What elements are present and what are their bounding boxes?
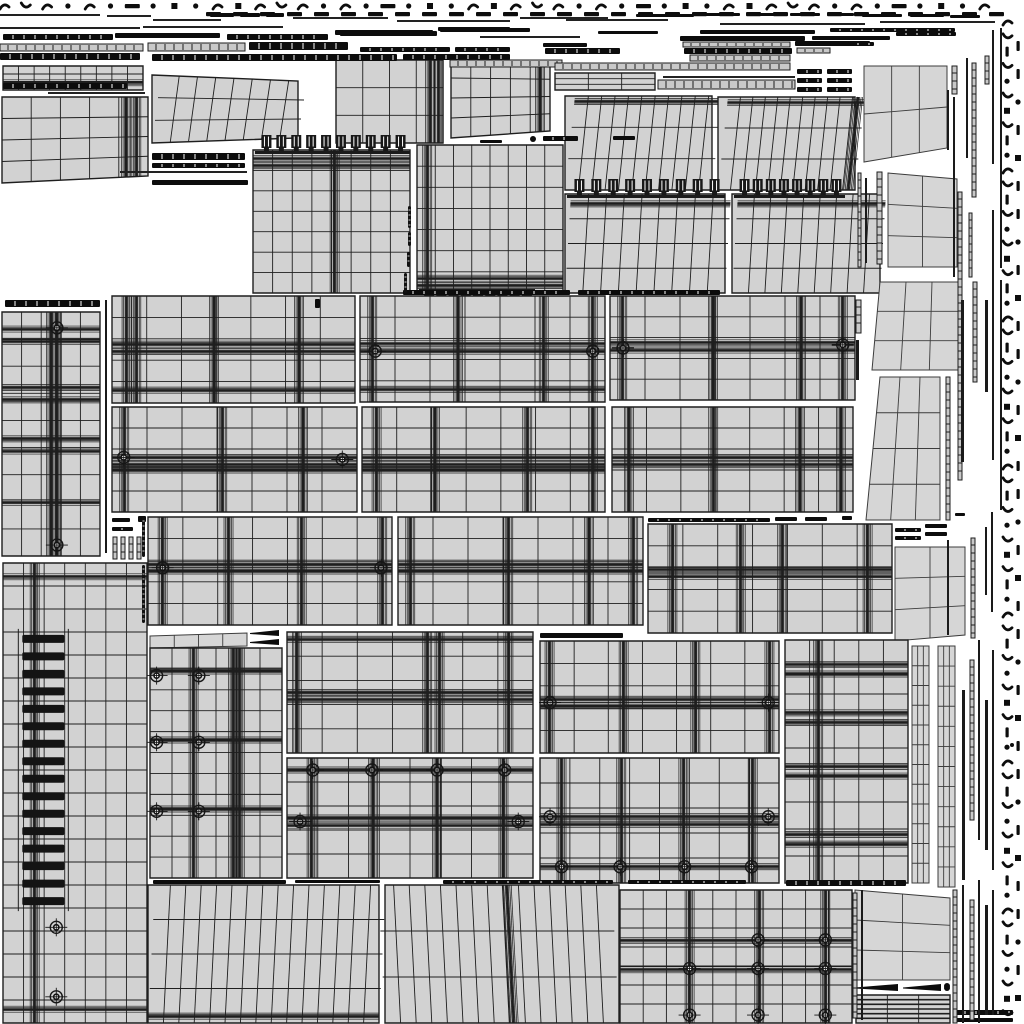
uv-strip-island bbox=[555, 63, 790, 70]
uv-strip-island bbox=[786, 880, 906, 886]
uv-island bbox=[895, 547, 965, 641]
uv-side-strip bbox=[129, 537, 133, 559]
uv-side-strip bbox=[992, 210, 994, 460]
uv-strip-island bbox=[628, 880, 746, 884]
uv-side-strip bbox=[113, 537, 117, 559]
uv-strip-island bbox=[827, 78, 852, 83]
uv-side-strip bbox=[973, 282, 977, 382]
uv-strip-island bbox=[700, 30, 815, 34]
uv-strip-island bbox=[895, 536, 921, 540]
uv-strip-island bbox=[543, 136, 578, 141]
uv-side-strip bbox=[408, 232, 411, 246]
uv-island bbox=[620, 890, 852, 1024]
uv-strip-island bbox=[775, 517, 797, 521]
uv-strip-island bbox=[543, 43, 587, 47]
uv-island bbox=[864, 66, 947, 162]
uv-strip-island bbox=[112, 518, 130, 522]
uv-strip-island bbox=[315, 299, 320, 308]
uv-island bbox=[612, 407, 853, 512]
uv-island bbox=[2, 312, 100, 556]
uv-strip-island bbox=[880, 21, 995, 23]
uv-side-strip bbox=[142, 565, 145, 623]
uv-strip-island bbox=[360, 47, 450, 52]
uv-island bbox=[336, 60, 443, 143]
uv-island bbox=[3, 563, 147, 1023]
uv-island bbox=[287, 632, 533, 753]
uv-island bbox=[610, 296, 855, 400]
uv-strip-island bbox=[720, 23, 865, 25]
uv-strip-island bbox=[896, 32, 956, 36]
uv-side-strip bbox=[961, 300, 964, 462]
uv-strip-island bbox=[658, 80, 795, 89]
uv-side-strip bbox=[992, 30, 994, 164]
uv-island bbox=[398, 517, 643, 625]
uv-island bbox=[938, 646, 955, 887]
uv-side-strip bbox=[966, 58, 968, 158]
uv-dot-island bbox=[944, 983, 950, 989]
uv-strip-island bbox=[3, 34, 113, 40]
uv-side-strip bbox=[858, 173, 861, 267]
uv-strip-island bbox=[0, 53, 140, 60]
uv-side-strip bbox=[947, 540, 949, 635]
uv-island bbox=[565, 96, 722, 190]
uv-side-strip bbox=[970, 900, 974, 1020]
uv-strip-island bbox=[480, 36, 580, 38]
uv-strip-island bbox=[895, 528, 921, 532]
uv-island bbox=[148, 517, 392, 625]
uv-strip-island bbox=[683, 42, 790, 47]
uv-side-strip bbox=[407, 252, 410, 267]
uv-strip-island bbox=[663, 76, 795, 78]
uv-strip-island bbox=[403, 290, 570, 295]
uv-atlas-frame bbox=[0, 0, 1024, 1024]
uv-side-strip bbox=[853, 893, 857, 1018]
uv-island bbox=[146, 648, 282, 878]
uv-strip-island bbox=[443, 880, 613, 884]
uv-side-strip bbox=[121, 537, 125, 559]
uv-strip-island bbox=[120, 171, 247, 173]
uv-island bbox=[648, 524, 892, 633]
uv-island bbox=[785, 640, 908, 883]
uv-island bbox=[539, 758, 779, 883]
uv-strip-island bbox=[152, 180, 248, 185]
uv-strip-island bbox=[3, 83, 127, 89]
uv-strip-island bbox=[805, 517, 827, 521]
uv-island bbox=[112, 296, 355, 403]
uv-island bbox=[152, 75, 304, 143]
uv-island bbox=[912, 646, 929, 883]
uv-side-strip bbox=[985, 527, 987, 595]
uv-strip-island bbox=[566, 19, 668, 21]
uv-island bbox=[856, 995, 950, 1023]
uv-strip-island bbox=[0, 44, 143, 51]
uv-strip-island bbox=[153, 19, 221, 21]
uv-island bbox=[417, 145, 563, 308]
uv-side-strip bbox=[970, 660, 974, 820]
uv-island bbox=[150, 633, 247, 648]
uv-side-strip bbox=[953, 890, 957, 1023]
uv-strip-island bbox=[112, 527, 133, 531]
uv-island bbox=[555, 73, 655, 90]
uv-strip-island bbox=[152, 163, 245, 168]
uv-island bbox=[253, 135, 410, 293]
uv-side-strip bbox=[137, 537, 141, 559]
uv-side-strip bbox=[978, 880, 980, 1023]
uv-strip-island bbox=[545, 48, 620, 54]
uv-side-strip bbox=[946, 377, 950, 520]
uv-strip-island bbox=[0, 27, 140, 29]
uv-side-strip bbox=[985, 700, 988, 850]
uv-strip-island bbox=[578, 290, 720, 295]
uv-strip-island bbox=[797, 69, 822, 74]
uv-strip-island bbox=[827, 69, 852, 74]
uv-strip-island bbox=[5, 300, 100, 307]
uv-strip-island bbox=[107, 15, 151, 17]
uv-strip-island bbox=[925, 524, 947, 528]
uv-strip-island bbox=[295, 880, 380, 883]
uv-island bbox=[112, 407, 357, 512]
uv-side-strip bbox=[856, 340, 859, 380]
uv-island bbox=[855, 890, 950, 980]
uv-strip-island bbox=[403, 54, 510, 60]
uv-side-strip bbox=[877, 172, 882, 264]
uv-side-strip bbox=[972, 63, 976, 197]
uv-island bbox=[380, 885, 619, 1023]
uv-strip-island bbox=[455, 47, 510, 52]
uv-side-strip bbox=[953, 97, 955, 277]
uv-wireframe-atlas bbox=[0, 0, 1024, 1024]
uv-side-strip bbox=[992, 650, 994, 870]
uv-strip-island bbox=[153, 880, 286, 884]
uv-strip-island bbox=[955, 513, 965, 516]
uv-side-strip bbox=[985, 905, 988, 1015]
uv-side-strip bbox=[408, 206, 411, 228]
uv-strip-island bbox=[648, 518, 770, 522]
uv-strip-island bbox=[152, 54, 397, 61]
uv-strip-island bbox=[335, 30, 433, 35]
uv-strip-island bbox=[842, 516, 852, 520]
uv-strip-island bbox=[848, 42, 874, 46]
uv-side-strip bbox=[865, 178, 867, 263]
uv-strip-island bbox=[0, 14, 100, 16]
uv-side-strip bbox=[1000, 280, 1002, 510]
uv-strip-island bbox=[598, 31, 658, 34]
uv-strip-island bbox=[450, 60, 562, 67]
uv-strip-island bbox=[480, 140, 502, 143]
uv-strip-island bbox=[48, 92, 145, 94]
uv-side-strip bbox=[856, 300, 861, 333]
uv-side-strip bbox=[985, 56, 989, 84]
uv-island bbox=[718, 97, 865, 190]
uv-strip-island bbox=[227, 34, 328, 40]
uv-dot-island bbox=[1010, 743, 1014, 747]
uv-island bbox=[148, 885, 384, 1023]
uv-island bbox=[539, 641, 779, 753]
uv-side-strip bbox=[1000, 28, 1002, 268]
uv-side-strip bbox=[971, 538, 975, 638]
uv-strip-island bbox=[684, 48, 792, 54]
uv-side-strip bbox=[962, 885, 964, 1023]
uv-strip-island bbox=[797, 48, 830, 53]
uv-strip-island bbox=[925, 532, 947, 536]
uv-strip-island bbox=[148, 43, 245, 51]
uv-strip-island bbox=[438, 27, 510, 31]
uv-strip-island bbox=[540, 633, 623, 638]
uv-island bbox=[2, 97, 148, 183]
uv-side-strip bbox=[142, 517, 145, 557]
uv-strip-island bbox=[613, 136, 635, 140]
uv-strip-island bbox=[797, 87, 822, 92]
uv-island bbox=[872, 282, 958, 370]
uv-strip-island bbox=[680, 36, 805, 41]
uv-island bbox=[362, 407, 605, 512]
uv-island bbox=[287, 758, 533, 878]
uv-side-strip bbox=[985, 300, 988, 392]
uv-strip-island bbox=[152, 153, 245, 160]
uv-strip-island bbox=[143, 26, 283, 28]
uv-island bbox=[360, 296, 605, 402]
uv-island bbox=[732, 179, 886, 293]
uv-side-strip bbox=[105, 300, 107, 553]
uv-strip-island bbox=[812, 36, 890, 40]
uv-side-strip bbox=[991, 512, 993, 612]
uv-strip-island bbox=[797, 78, 822, 83]
uv-strip-island bbox=[397, 20, 510, 22]
uv-strip-island bbox=[827, 87, 852, 92]
uv-side-strip bbox=[992, 890, 994, 1015]
uv-side-strip bbox=[404, 273, 407, 293]
uv-side-strip bbox=[861, 890, 863, 1020]
uv-island bbox=[451, 58, 550, 138]
uv-side-strip bbox=[947, 90, 949, 150]
uv-side-strip bbox=[969, 213, 972, 277]
uv-strip-island bbox=[115, 33, 220, 38]
uv-strip-island bbox=[690, 55, 790, 61]
uv-side-strip bbox=[952, 66, 957, 94]
uv-strip-island bbox=[249, 42, 348, 50]
uv-side-strip bbox=[978, 640, 980, 840]
uv-strip-island bbox=[520, 17, 608, 19]
uv-strip-island bbox=[830, 28, 955, 32]
uv-island bbox=[888, 173, 957, 267]
uv-island bbox=[565, 179, 731, 293]
uv-strip-island bbox=[293, 17, 388, 19]
uv-side-strip bbox=[962, 690, 965, 880]
uv-dot-island bbox=[530, 136, 536, 142]
